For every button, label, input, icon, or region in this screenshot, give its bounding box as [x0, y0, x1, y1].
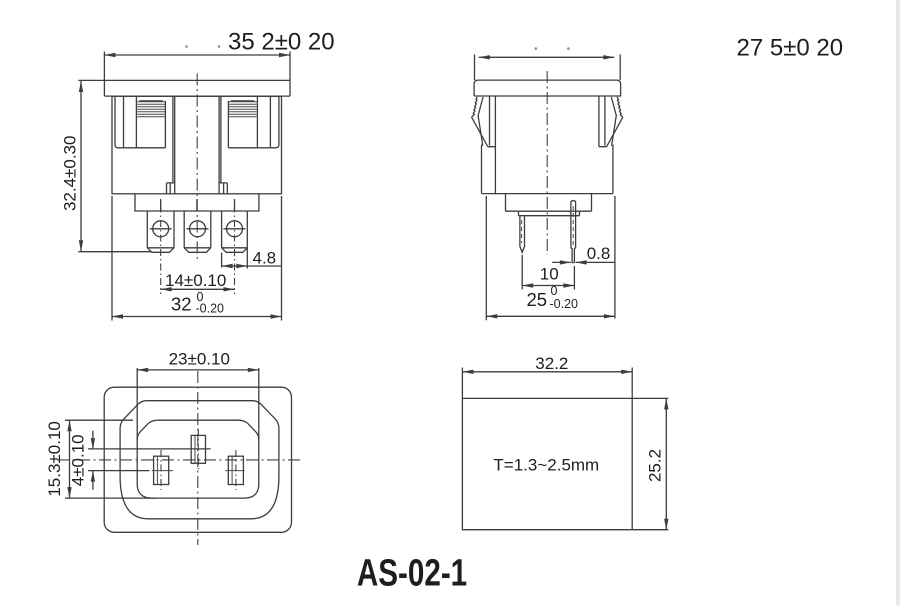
svg-text:32.2: 32.2 [535, 354, 568, 373]
svg-text:25.2: 25.2 [646, 449, 665, 482]
svg-text:-0.20: -0.20 [550, 297, 579, 311]
svg-text:15.3±0.10: 15.3±0.10 [45, 421, 64, 497]
svg-text:AS-02-1: AS-02-1 [357, 552, 467, 594]
svg-text:10: 10 [540, 264, 559, 283]
svg-text:35 2±0 20: 35 2±0 20 [228, 29, 335, 56]
svg-text:25: 25 [527, 289, 548, 310]
svg-text:27 5±0 20: 27 5±0 20 [737, 35, 844, 62]
svg-text:4.8: 4.8 [253, 248, 277, 267]
svg-text:0.8: 0.8 [587, 244, 611, 263]
svg-text:-0.20: -0.20 [196, 302, 225, 316]
svg-text:32: 32 [171, 294, 192, 315]
svg-text:4±0.10: 4±0.10 [69, 434, 88, 486]
svg-text:T=1.3~2.5mm: T=1.3~2.5mm [493, 455, 599, 474]
svg-text:14±0.10: 14±0.10 [165, 271, 226, 290]
svg-text:23±0.10: 23±0.10 [169, 349, 230, 368]
svg-text:32.4±0.30: 32.4±0.30 [61, 136, 80, 212]
